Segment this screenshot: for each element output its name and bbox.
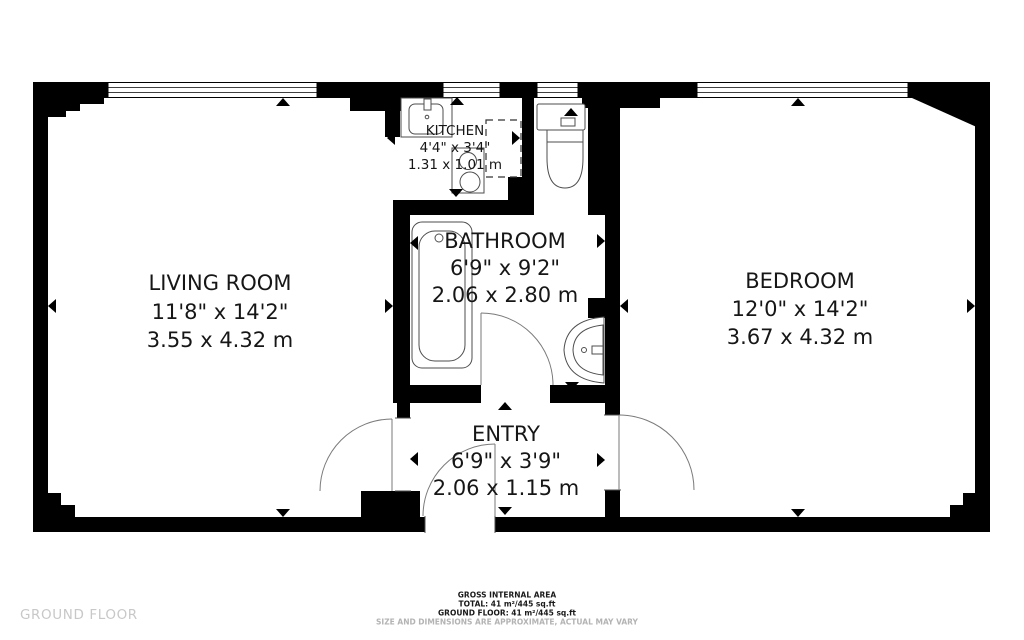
floor-plan: LIVING ROOM 11'8" x 14'2" 3.55 x 4.32 m …	[0, 0, 1024, 640]
living-room-label: LIVING ROOM	[149, 271, 292, 295]
floor-name-label: GROUND FLOOR	[20, 607, 138, 623]
entry-label: ENTRY	[472, 422, 540, 446]
footer-total-area: TOTAL: 41 m²/445 sq.ft	[459, 600, 556, 609]
bathroom-dimensions-imperial: 6'9" x 9'2"	[450, 256, 560, 280]
living-room-dimensions-metric: 3.55 x 4.32 m	[147, 328, 293, 352]
footer-ground-floor-area: GROUND FLOOR: 41 m²/445 sq.ft	[438, 609, 576, 618]
kitchen-label: KITCHEN	[426, 123, 485, 139]
bedroom-dimensions-metric: 3.67 x 4.32 m	[727, 325, 873, 349]
door-living-room	[320, 418, 411, 491]
kitchen-dimensions-imperial: 4'4" x 3'4"	[420, 140, 491, 156]
door-bedroom	[604, 415, 694, 490]
bathroom-sink-icon	[564, 317, 604, 383]
footer-disclaimer: SIZE AND DIMENSIONS ARE APPROXIMATE, ACT…	[376, 618, 638, 627]
footer-gross-internal-area: GROSS INTERNAL AREA	[458, 591, 556, 600]
window-bedroom	[697, 83, 908, 98]
window-living-room	[108, 83, 317, 98]
bedroom-dimensions-imperial: 12'0" x 14'2"	[732, 297, 869, 321]
door-bathroom	[481, 313, 553, 385]
entry-dimensions-metric: 2.06 x 1.15 m	[433, 476, 579, 500]
window-kitchen	[443, 83, 500, 98]
bedroom-label: BEDROOM	[745, 269, 855, 293]
window-bathroom	[537, 83, 578, 98]
bathroom-label: BATHROOM	[444, 229, 566, 253]
kitchen-dimensions-metric: 1.31 x 1.01 m	[408, 157, 502, 173]
toilet-icon	[537, 104, 585, 188]
entry-dimensions-imperial: 6'9" x 3'9"	[451, 449, 561, 473]
living-room-dimensions-imperial: 11'8" x 14'2"	[152, 300, 289, 324]
bathroom-dimensions-metric: 2.06 x 2.80 m	[432, 283, 578, 307]
